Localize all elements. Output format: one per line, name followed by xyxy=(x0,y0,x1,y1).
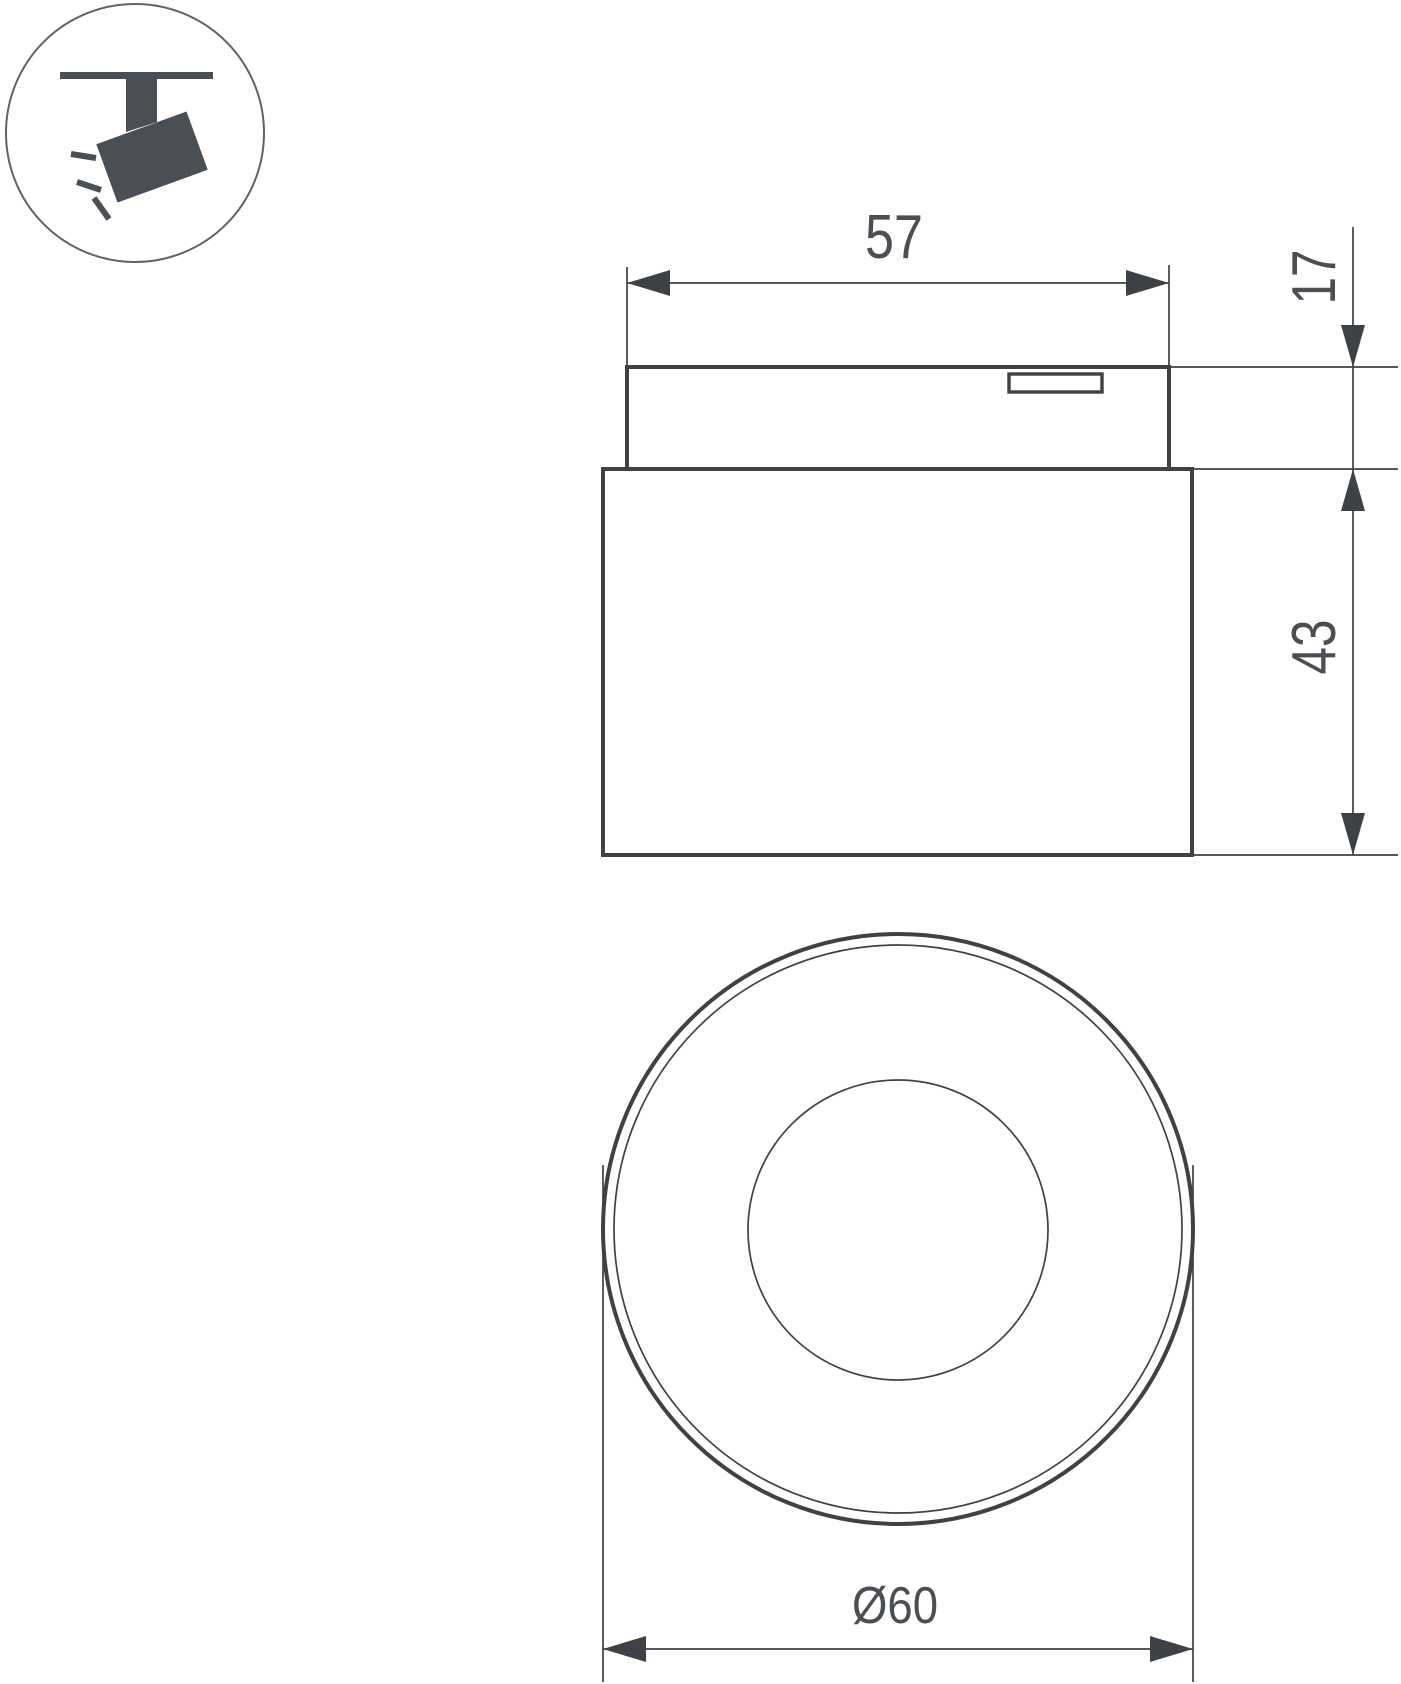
arrow-down-bottom-icon xyxy=(1341,813,1365,855)
side-view xyxy=(603,367,1192,855)
luminaire-dimension-drawing: 57 17 43 xyxy=(0,0,1401,1684)
arrow-up-icon xyxy=(1341,469,1365,511)
dimension-label-diameter: Ø60 xyxy=(852,1577,938,1635)
arrow-right-icon xyxy=(1150,1636,1193,1662)
dimension-label-top-width: 57 xyxy=(865,203,923,272)
top-view xyxy=(603,934,1193,1524)
top-view-inner-rim xyxy=(614,945,1182,1513)
arrow-down-icon xyxy=(1341,325,1365,367)
arrow-left-icon xyxy=(627,270,670,296)
dimension-heights: 17 43 xyxy=(1169,227,1398,855)
track-rail-icon xyxy=(60,72,213,79)
side-view-mount-body xyxy=(627,367,1169,469)
side-view-connector-slot xyxy=(1009,374,1102,392)
technical-drawing-page: 57 17 43 xyxy=(0,0,1401,1684)
dimension-label-body-height: 43 xyxy=(1280,620,1349,675)
dimension-label-mount-height: 17 xyxy=(1280,250,1349,305)
side-view-lamp-body xyxy=(603,469,1192,855)
track-spotlight-icon xyxy=(6,4,264,262)
arrow-right-icon xyxy=(1126,270,1169,296)
top-view-outer-rim xyxy=(603,934,1193,1524)
top-view-lens xyxy=(748,1080,1048,1380)
dimension-top-width: 57 xyxy=(627,203,1169,367)
arrow-left-icon xyxy=(603,1636,646,1662)
